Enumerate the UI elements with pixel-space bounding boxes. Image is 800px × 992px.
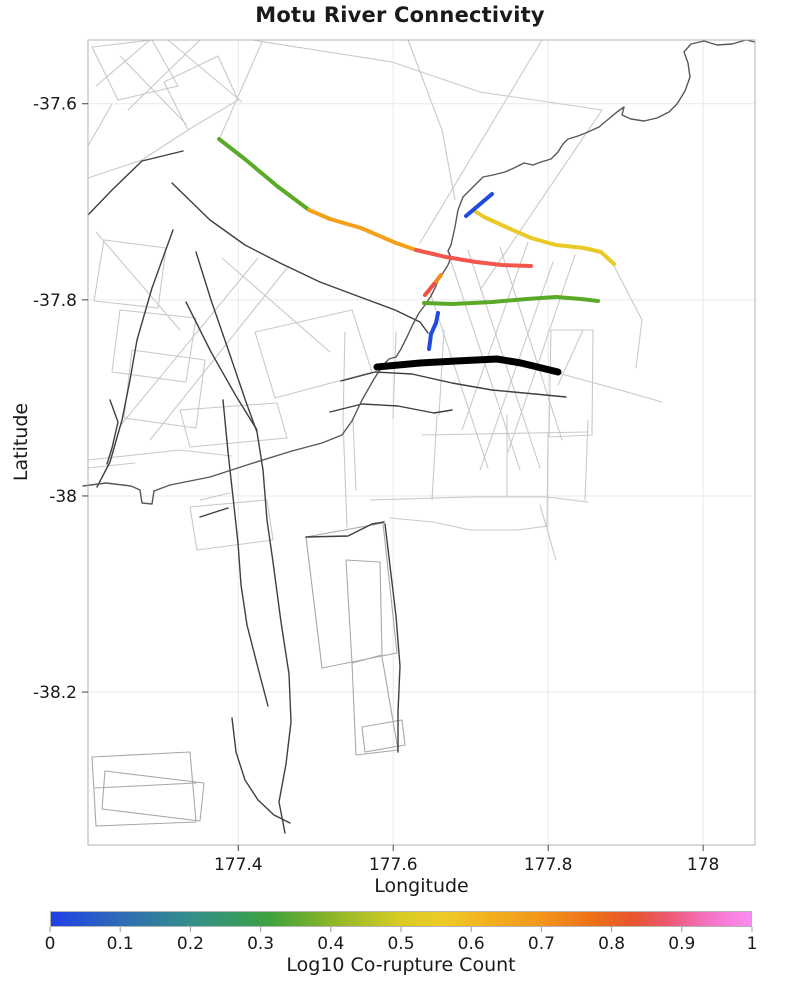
plot-border [88, 40, 755, 845]
fault-outlines-light [255, 310, 372, 398]
segment-yellow [473, 210, 614, 264]
fault-outlines-light [112, 310, 196, 382]
colorbar-tick-label: 0.3 [247, 934, 274, 954]
fault-outlines-medium [92, 752, 196, 826]
fault-outlines-medium [102, 771, 204, 821]
fault-outlines-light [88, 463, 135, 468]
colorbar-tick-label: 0.2 [177, 934, 204, 954]
fault-outlines-light [150, 268, 287, 440]
x-tick-label: 178 [687, 855, 719, 875]
y-axis-title: Latitude [10, 403, 32, 481]
fault-traces-dark [341, 372, 566, 397]
colorbar-title: Log10 Co-rupture Count [50, 954, 752, 976]
fault-outlines-light [190, 500, 273, 550]
colorbar-tick-label: 1 [747, 934, 758, 954]
colorbar-tick-label: 0.9 [668, 934, 695, 954]
fault-outlines-light [200, 493, 230, 500]
fault-traces-dark [88, 151, 183, 215]
fault-outlines-light [343, 420, 347, 527]
fault-traces-dark [200, 508, 228, 517]
fault-traces-dark [223, 400, 268, 706]
x-tick-label: 177.8 [524, 855, 573, 875]
fault-outlines-light [353, 420, 356, 490]
segment-green-northwest [219, 139, 309, 210]
fault-outlines-light [124, 350, 205, 428]
fault-traces-dark [97, 230, 173, 487]
segment-green-east [424, 297, 598, 304]
y-tick-label: -37.8 [33, 291, 77, 311]
fault-outlines-light [252, 40, 602, 110]
fault-outlines-light [370, 497, 588, 502]
map-plot-canvas: 177.4177.6177.8178-37.6-37.8-38-38.200.1… [0, 0, 800, 992]
x-axis-title: Longitude [88, 875, 755, 897]
fault-traces-dark [330, 404, 452, 413]
fault-outlines-light [432, 415, 437, 500]
fault-outlines-light [508, 255, 575, 452]
fault-outlines-light [120, 258, 258, 426]
fault-outlines-light [343, 332, 345, 420]
fault-outlines-light [92, 40, 178, 100]
colorbar-tick-label: 0 [45, 934, 56, 954]
fault-outlines-light [420, 40, 542, 243]
fault-outlines-medium [352, 657, 398, 755]
fault-outlines-light [439, 330, 444, 415]
fault-outlines-light [120, 56, 186, 124]
colorbar-tick-label: 0.7 [528, 934, 555, 954]
y-tick-label: -37.6 [33, 95, 77, 115]
coastline [83, 40, 755, 504]
fault-outlines-medium [346, 560, 382, 663]
fault-outlines-light [613, 264, 642, 368]
fault-outlines-light [219, 42, 262, 140]
segment-red-mid [416, 250, 531, 266]
fault-outlines-light [88, 104, 112, 146]
segment-orange-mid [309, 210, 416, 250]
segment-blue-lower [429, 313, 438, 349]
colorbar-tick-label: 0.4 [317, 934, 344, 954]
fault-outlines-light [408, 40, 455, 200]
colorbar-tick-label: 0.5 [387, 934, 414, 954]
fault-outlines-light [558, 373, 662, 402]
fault-outlines-medium [95, 783, 196, 788]
fault-traces-dark [232, 718, 290, 823]
colorbar-tick-label: 0.6 [458, 934, 485, 954]
colorbar-tick-label: 0.8 [598, 934, 625, 954]
y-tick-label: -38.2 [33, 683, 77, 703]
fault-outlines-light [500, 247, 562, 440]
x-tick-label: 177.6 [369, 855, 418, 875]
fault-traces-dark [196, 252, 291, 833]
figure-page: { "figure": { "title": "Motu River Conne… [0, 0, 800, 992]
segment-black-thick [377, 359, 558, 372]
y-tick-label: -38 [49, 487, 77, 507]
fault-outlines-light [168, 40, 242, 102]
fault-traces-dark [186, 302, 257, 430]
x-tick-label: 177.4 [214, 855, 263, 875]
fault-outlines-light [390, 518, 548, 530]
colorbar-tick-label: 0.1 [107, 934, 134, 954]
fault-outlines-light [422, 432, 588, 435]
fault-outlines-light [94, 240, 166, 308]
